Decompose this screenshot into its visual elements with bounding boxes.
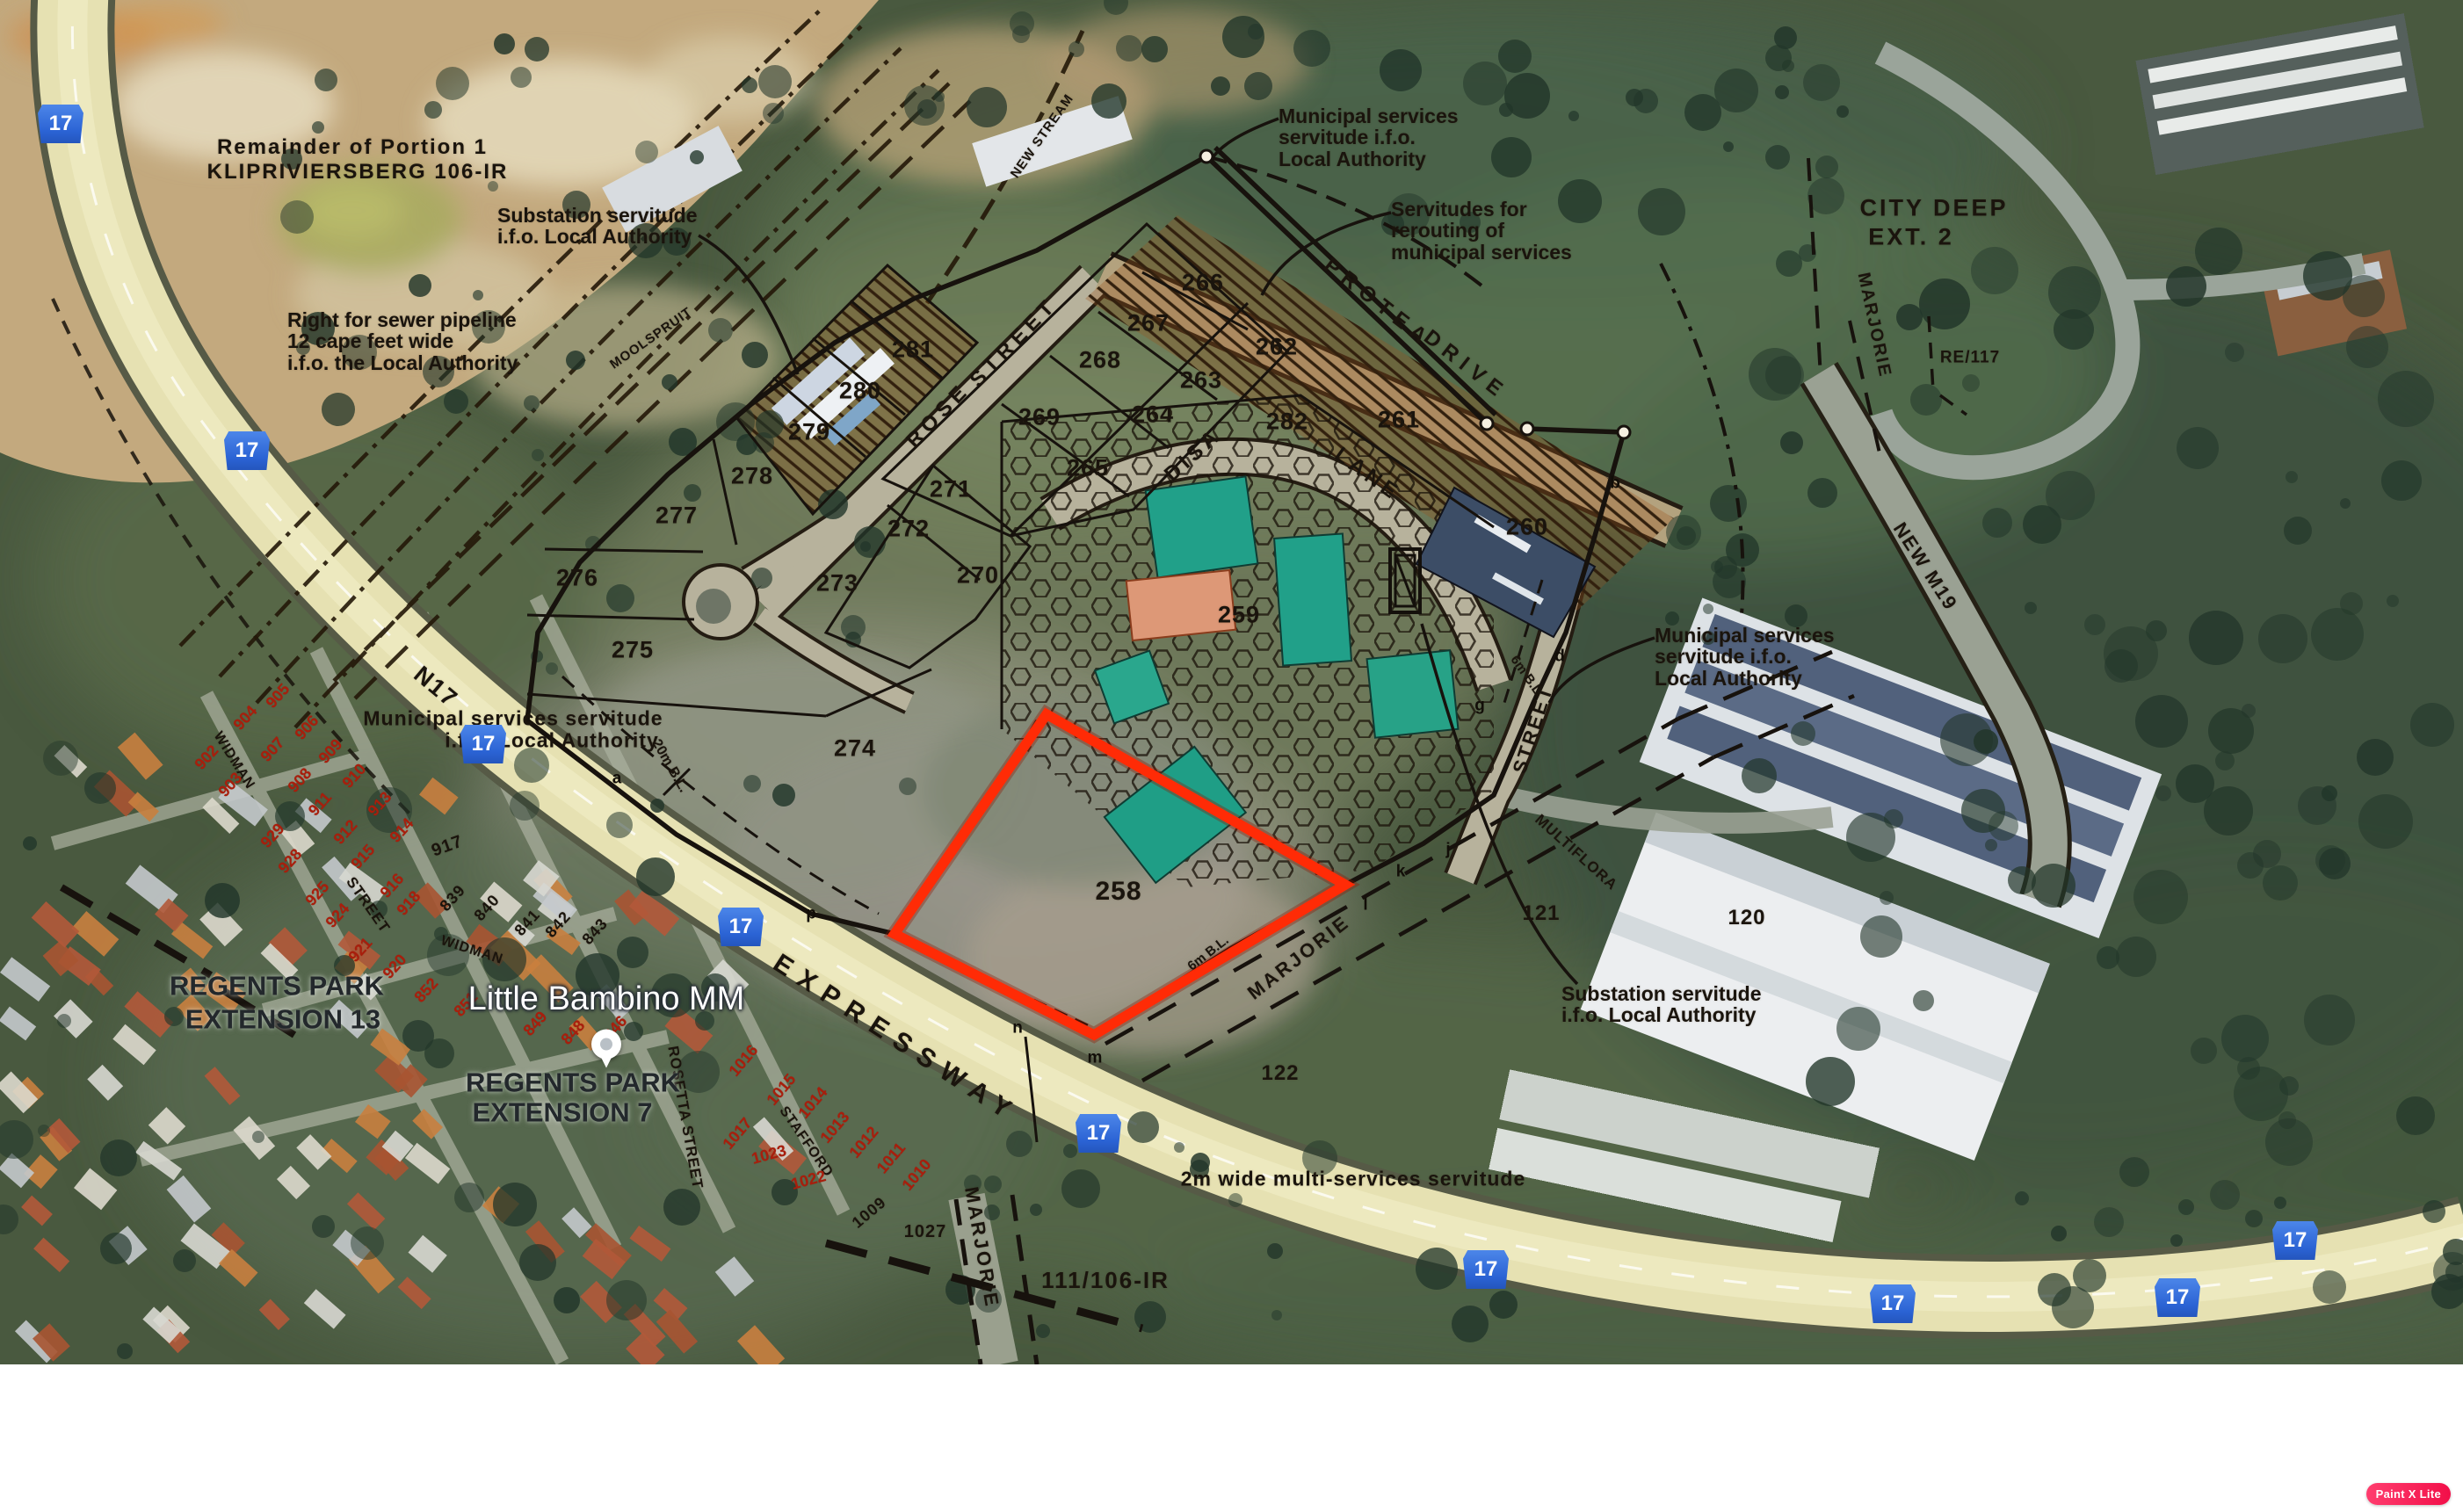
- paint-x-lite-badge: Paint X Lite: [2366, 1483, 2451, 1505]
- boundary-letter-j: j: [1445, 842, 1450, 858]
- boundary-letter-k: k: [1396, 864, 1406, 880]
- red-erf-1017: 1017: [720, 1115, 755, 1152]
- annotation-substation-servitude: Substation servitudei.f.o. Local Authori…: [1561, 983, 1761, 1027]
- annotation-line: i.f.o. Local Authority: [497, 226, 697, 248]
- annotation-right-for-sewer-pipeline: Right for sewer pipeline12 cape feet wid…: [287, 309, 518, 374]
- place-label-little-bambino-mm-0[interactable]: Little Bambino MM: [468, 982, 745, 1016]
- route-17-shield: 17: [2155, 1278, 2200, 1317]
- red-erf-906: 906: [292, 713, 321, 742]
- boundary-letter-b: b: [1610, 475, 1620, 492]
- parcel-number-275: 275: [612, 639, 654, 662]
- annotation-line: i.f.o. Local Authority: [1561, 1004, 1761, 1026]
- annotation-line: servitude i.f.o.: [1655, 646, 1835, 668]
- boundary-letter-g: g: [1474, 698, 1485, 714]
- annotation-servitudes-for: Servitudes forrerouting ofmunicipal serv…: [1391, 199, 1572, 264]
- place-label-extension-7-4[interactable]: EXTENSION 7: [473, 1099, 653, 1126]
- parcel-number-122: 122: [1261, 1063, 1299, 1084]
- red-erf-1012: 1012: [846, 1124, 881, 1161]
- area-label-klipriviersberg-106-ir: KLIPRIVIERSBERG 106-IR: [207, 162, 509, 183]
- red-erf-905: 905: [263, 681, 292, 711]
- area-label-city-deep: CITY DEEP: [1859, 197, 2008, 221]
- parcel-number-270: 270: [957, 564, 999, 588]
- route-17-shield: 17: [460, 725, 506, 763]
- route-17-shield: 17: [1463, 1250, 1509, 1289]
- parcel-number-264: 264: [1132, 403, 1174, 427]
- boundary-letter-p: p: [806, 906, 816, 922]
- red-erf-925: 925: [302, 879, 331, 908]
- boundary-letter-m: m: [1088, 1050, 1103, 1067]
- map-viewport[interactable]: Remainder of Portion 1KLIPRIVIERSBERG 10…: [0, 0, 2463, 1364]
- annotation-line: Local Authority: [1655, 668, 1835, 690]
- parcel-number-843: 843: [579, 915, 610, 948]
- street-label-marjorie-7: MARJORIE: [961, 1185, 1002, 1310]
- annotation-line: Local Authority: [1279, 148, 1459, 170]
- annotation-substation-servitude: Substation servitudei.f.o. Local Authori…: [497, 205, 697, 249]
- annotation-municipal-services: Municipal servicesservitude i.f.o.Local …: [1655, 625, 1835, 690]
- red-erf-920: 920: [380, 951, 409, 981]
- annotation-municipal-services: Municipal servicesservitude i.f.o.Local …: [1279, 105, 1459, 170]
- red-erf-918: 918: [394, 888, 423, 918]
- parcel-number-267: 267: [1127, 312, 1170, 336]
- annotation-line: Substation servitude: [497, 205, 697, 227]
- parcel-number-266: 266: [1182, 271, 1224, 295]
- street-label-moolspruit-19: MOOLSPRUIT: [608, 305, 695, 371]
- parcel-number-1027: 1027: [904, 1223, 947, 1241]
- parcel-number-278: 278: [731, 465, 773, 488]
- parcel-number-277: 277: [656, 504, 698, 528]
- parcel-number-259: 259: [1218, 604, 1260, 627]
- annotation-line: Servitudes for: [1391, 199, 1572, 221]
- route-17-shield: 17: [224, 431, 270, 470]
- red-erf-907: 907: [257, 734, 286, 764]
- parcel-number-121: 121: [1522, 903, 1560, 924]
- area-label-111-106-ir: 111/106-IR: [1041, 1269, 1170, 1291]
- red-erf-1022: 1022: [789, 1168, 827, 1192]
- parcel-number-261: 261: [1378, 409, 1420, 432]
- annotation-line: rerouting of: [1391, 220, 1572, 242]
- parcel-number-262: 262: [1256, 336, 1298, 359]
- route-17-shield: 17: [1870, 1284, 1916, 1323]
- red-erf-1016: 1016: [726, 1042, 761, 1079]
- area-label-2m-wide-multi-services-servitude: 2m wide multi-services servitude: [1181, 1169, 1526, 1190]
- red-erf-911: 911: [306, 789, 335, 819]
- street-label-marjorie-6: MARJORIE: [1244, 912, 1353, 1003]
- red-erf-908: 908: [285, 765, 314, 795]
- annotation-line: servitude i.f.o.: [1279, 127, 1459, 148]
- red-erf-1010: 1010: [899, 1156, 934, 1193]
- place-label-regents-park-1[interactable]: REGENTS PARK: [170, 973, 384, 1000]
- parcel-number-265: 265: [1067, 457, 1109, 481]
- red-erf-921: 921: [345, 935, 374, 965]
- parcel-number-279: 279: [788, 421, 830, 445]
- map-pin[interactable]: [591, 1030, 621, 1070]
- boundary-letter-l: l: [1363, 897, 1367, 914]
- parcel-number-274: 274: [834, 737, 876, 761]
- red-erf-928: 928: [275, 846, 304, 876]
- street-label-widman-14: WIDMAN: [439, 934, 505, 967]
- red-erf-924: 924: [322, 901, 351, 930]
- red-erf-909: 909: [315, 736, 344, 766]
- parcel-number-839: 839: [437, 882, 467, 915]
- parcel-number-268: 268: [1079, 349, 1121, 373]
- annotation-line: Municipal services: [1279, 105, 1459, 127]
- street-label-lane-5: LANE: [1330, 444, 1403, 505]
- parcel-number-281: 281: [892, 338, 934, 362]
- parcel-number-841: 841: [511, 907, 542, 939]
- parcel-number-276: 276: [556, 567, 598, 590]
- red-erf-1011: 1011: [874, 1139, 909, 1176]
- route-17-shield: 17: [1076, 1114, 1121, 1153]
- boundary-letter-d: d: [1554, 648, 1565, 665]
- red-erf-913: 913: [365, 789, 394, 819]
- annotation-line: Substation servitude: [1561, 983, 1761, 1005]
- parcel-number-260: 260: [1506, 516, 1548, 539]
- parcel-number-840: 840: [471, 892, 502, 924]
- measure-label-6m-b-l-2: 6m B.L.: [1508, 654, 1546, 700]
- boundary-letter-a: a: [612, 770, 622, 787]
- map-pin-dot: [600, 1038, 612, 1051]
- parcel-number-280: 280: [839, 380, 881, 403]
- parcel-number-917: 917: [429, 832, 465, 859]
- area-label-ext-2: EXT. 2: [1868, 226, 1954, 250]
- parcel-number-842: 842: [542, 908, 573, 941]
- red-erf-910: 910: [339, 761, 368, 791]
- measure-label-20m-b-l-0: 20m B.L.: [648, 737, 690, 795]
- map-pin-tail: [599, 1054, 613, 1068]
- parcel-number-273: 273: [816, 572, 858, 596]
- measure-label-6m-b-l-1: 6m B.L.: [1185, 933, 1231, 973]
- street-label-marjorie-8: MARJORIE: [1855, 271, 1894, 379]
- boundary-letter-n: n: [1012, 1020, 1023, 1037]
- red-erf-915: 915: [348, 842, 377, 872]
- place-label-regents-park-3[interactable]: REGENTS PARK: [466, 1069, 680, 1096]
- parcel-number-263: 263: [1180, 369, 1222, 393]
- route-17-shield: 17: [38, 105, 83, 143]
- red-erf-929: 929: [257, 821, 286, 850]
- annotation-line: i.f.o. the Local Authority: [287, 352, 518, 374]
- place-label-extension-13-2[interactable]: EXTENSION 13: [185, 1006, 380, 1033]
- red-erf-1015: 1015: [764, 1071, 799, 1108]
- street-label-disa-4: DISA: [1161, 424, 1226, 486]
- red-erf-912: 912: [330, 817, 359, 847]
- route-17-shield: 17: [2272, 1221, 2318, 1260]
- red-erf-852: 852: [411, 975, 440, 1005]
- parcel-number-282: 282: [1266, 410, 1308, 434]
- area-label-re-117: RE/117: [1940, 350, 2000, 366]
- parcel-number-271: 271: [930, 478, 972, 502]
- street-label-new-m19-16: NEW M19: [1890, 519, 1961, 614]
- parcel-number-258: 258: [1095, 879, 1141, 905]
- red-erf-914: 914: [387, 815, 416, 845]
- street-label-multiflora-10: MULTIFLORA: [1532, 812, 1620, 893]
- street-label-protea-2: PROTEA: [1320, 255, 1435, 351]
- red-erf-1023: 1023: [750, 1142, 787, 1167]
- red-erf-904: 904: [230, 703, 259, 733]
- route-17-shield: 17: [718, 908, 764, 946]
- annotation-line: Right for sewer pipeline: [287, 309, 518, 331]
- map-label-layer: Remainder of Portion 1KLIPRIVIERSBERG 10…: [0, 0, 2463, 1364]
- red-erf-1013: 1013: [817, 1109, 852, 1146]
- parcel-number-1009: 1009: [849, 1194, 888, 1231]
- street-label-drive-3: DRIVE: [1420, 327, 1511, 405]
- annotation-line: Municipal services: [1655, 625, 1835, 647]
- annotation-line: 12 cape feet wide: [287, 330, 518, 352]
- area-label-municipal-services-servitude: Municipal services servitude: [363, 709, 663, 729]
- annotation-line: municipal services: [1391, 242, 1572, 264]
- street-label-street-1: STREET: [967, 294, 1061, 392]
- street-label-new-stream-20: NEW STREAM: [1009, 92, 1076, 181]
- area-label-remainder-of-portion-1: Remainder of Portion 1: [217, 137, 488, 158]
- red-erf-848: 848: [558, 1017, 587, 1047]
- street-label-n17-17: N17: [409, 662, 462, 712]
- red-erf-1014: 1014: [795, 1084, 830, 1121]
- parcel-number-269: 269: [1018, 406, 1061, 430]
- parcel-number-120: 120: [1728, 908, 1765, 929]
- parcel-number-272: 272: [887, 517, 930, 541]
- screenshot-root: Remainder of Portion 1KLIPRIVIERSBERG 10…: [0, 0, 2463, 1512]
- street-label-rose-0: ROSE: [902, 380, 974, 452]
